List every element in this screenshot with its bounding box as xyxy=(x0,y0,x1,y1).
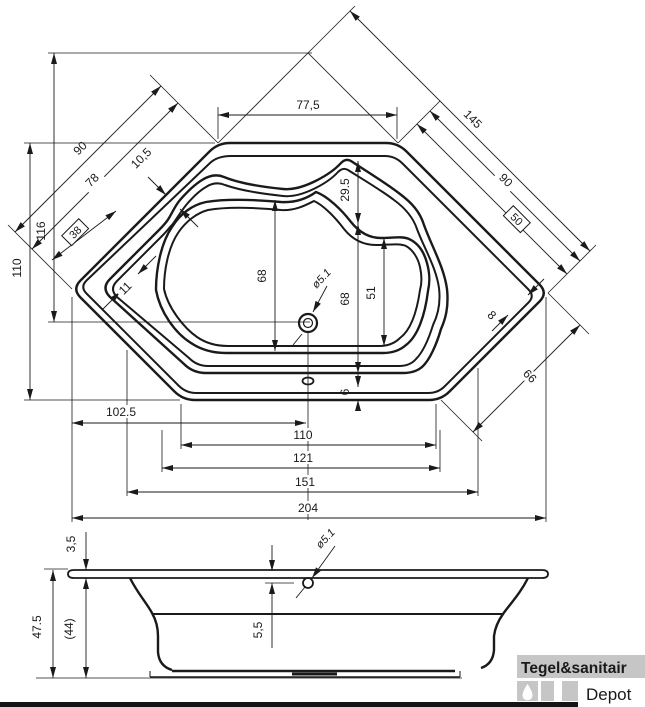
side-drain-icon xyxy=(296,546,335,598)
technical-drawing-page: 77,5 145 90 50 8 66 90 78 38 10,5 11 116… xyxy=(0,0,645,707)
dim-basin-width-right: 51 xyxy=(364,286,378,300)
side-view: 3,5 47.5 (44) 5,5 ø5.1 xyxy=(30,527,548,678)
dim-drain-diameter-plan: ø5.1 xyxy=(310,267,334,291)
dim-basin-height-right: 68 xyxy=(338,292,352,306)
dim-drain-depth: 5,5 xyxy=(251,621,265,638)
dim-apex-height: 116 xyxy=(34,221,48,240)
bathtub-drawing-svg: 77,5 145 90 50 8 66 90 78 38 10,5 11 116… xyxy=(0,0,645,707)
side-rim-plate xyxy=(68,570,548,578)
dim-drain-offset: 102.5 xyxy=(106,405,136,419)
dim-rim-gap-lower-left: 11 xyxy=(116,279,135,298)
dim-side-height: 110 xyxy=(10,258,24,277)
side-tub-body xyxy=(130,578,528,670)
dim-rim-width-bottom: 6 xyxy=(338,388,352,395)
logo-tile-2 xyxy=(541,681,554,701)
dim-back-edge-right: 145 xyxy=(461,107,485,131)
bottom-border-bar xyxy=(0,702,578,707)
drain-icon xyxy=(293,286,327,345)
tub-outer-rim xyxy=(76,143,544,400)
dimension-lines-side xyxy=(53,532,272,678)
dim-top-width: 77,5 xyxy=(296,98,320,112)
dim-bottom-width-121: 121 xyxy=(293,451,313,465)
dim-headrest-depth: 29.5 xyxy=(338,178,352,202)
logo: Tegel&sanitair Depot xyxy=(517,655,645,704)
basin-floor-inner xyxy=(164,201,422,346)
dim-body-height: (44) xyxy=(62,618,76,639)
dim-rim-thickness: 3,5 xyxy=(64,535,78,552)
dim-back-edge-left: 90 xyxy=(70,138,90,158)
extension-lines-side xyxy=(44,569,294,583)
dim-basin-height-left: 68 xyxy=(255,269,269,283)
plan-view: 77,5 145 90 50 8 66 90 78 38 10,5 11 116… xyxy=(8,6,596,522)
dim-bottom-width-110: 110 xyxy=(293,428,312,442)
dim-total-width: 204 xyxy=(298,501,318,515)
dim-total-height: 47.5 xyxy=(30,615,44,639)
logo-brand-text: Tegel&sanitair xyxy=(521,660,627,677)
logo-tile-3 xyxy=(562,681,578,701)
dim-bottom-width-151: 151 xyxy=(295,475,315,489)
logo-sub-text: Depot xyxy=(586,685,632,704)
basin-floor-outline xyxy=(156,192,429,353)
